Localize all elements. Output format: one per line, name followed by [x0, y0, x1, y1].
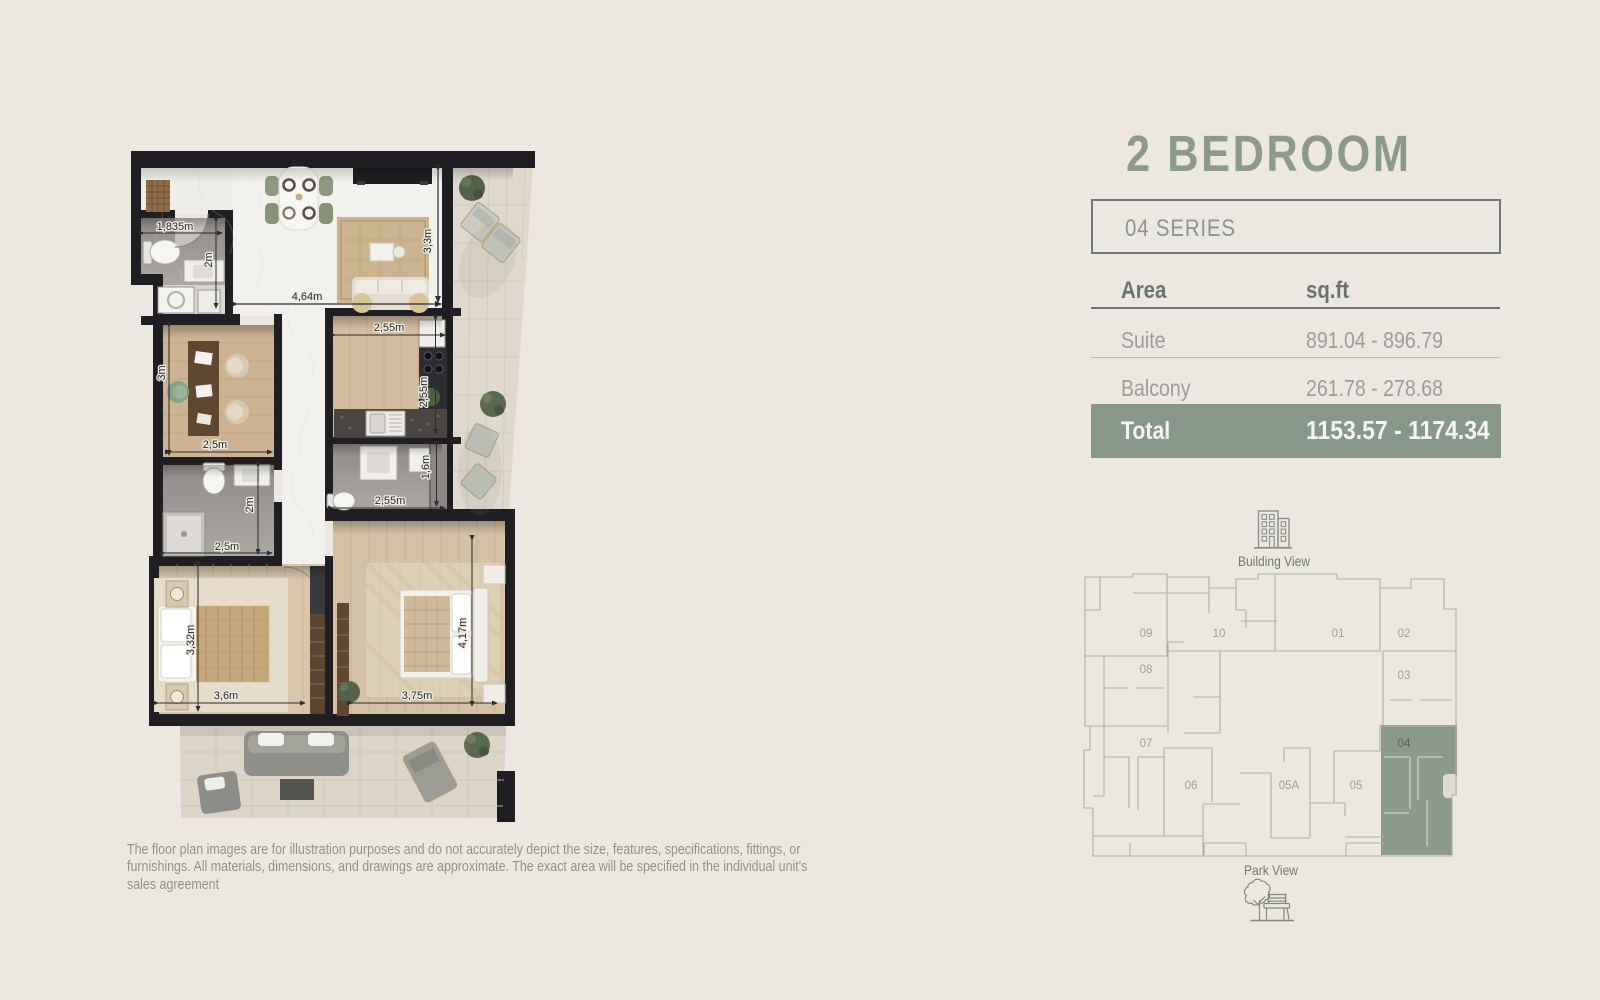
- svg-text:3,75m: 3,75m: [402, 690, 433, 702]
- svg-text:1,6m: 1,6m: [420, 455, 432, 479]
- svg-text:4,64m: 4,64m: [292, 291, 323, 303]
- svg-text:01: 01: [1332, 628, 1345, 640]
- svg-text:2m: 2m: [244, 497, 256, 512]
- svg-text:09: 09: [1140, 628, 1153, 640]
- svg-text:2,55m: 2,55m: [418, 377, 430, 408]
- svg-text:3,3m: 3,3m: [422, 229, 434, 253]
- svg-text:08: 08: [1140, 664, 1153, 676]
- svg-text:2,5m: 2,5m: [203, 439, 227, 451]
- svg-text:4,17m: 4,17m: [457, 618, 469, 649]
- svg-text:05: 05: [1350, 780, 1363, 792]
- svg-text:07: 07: [1140, 738, 1153, 750]
- svg-text:2,5m: 2,5m: [215, 541, 239, 553]
- svg-text:05A: 05A: [1279, 780, 1300, 792]
- svg-text:03: 03: [1398, 670, 1411, 682]
- svg-text:3m: 3m: [156, 365, 168, 380]
- svg-text:06: 06: [1185, 780, 1198, 792]
- svg-text:04: 04: [1398, 738, 1411, 750]
- svg-text:1,835m: 1,835m: [157, 221, 194, 233]
- svg-text:2,55m: 2,55m: [375, 495, 406, 507]
- svg-text:3,32m: 3,32m: [185, 625, 197, 656]
- svg-text:10: 10: [1213, 628, 1226, 640]
- svg-text:3,6m: 3,6m: [214, 690, 238, 702]
- svg-text:2,55m: 2,55m: [374, 322, 405, 334]
- svg-text:02: 02: [1398, 628, 1411, 640]
- svg-text:2m: 2m: [203, 252, 215, 267]
